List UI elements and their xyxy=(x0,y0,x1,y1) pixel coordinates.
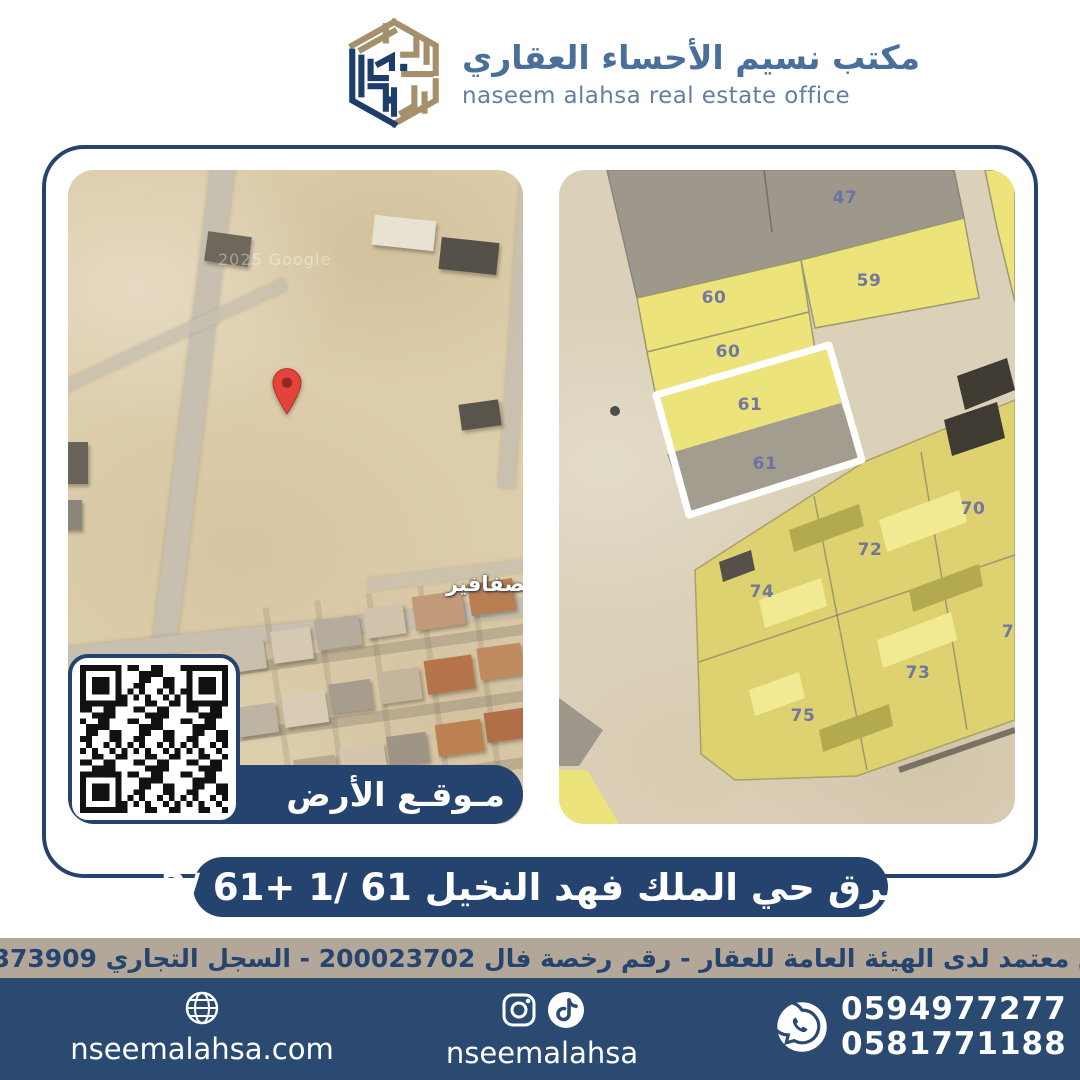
instagram-icon[interactable] xyxy=(499,990,539,1030)
building xyxy=(458,399,501,430)
parcel-number: 72 xyxy=(858,540,883,560)
parcel-number: 60 xyxy=(702,288,727,308)
social-handle[interactable]: nseemalahsa xyxy=(446,1036,638,1070)
listing-title: شرق حي الملك فهد النخيل 61 /1 +61 /2 xyxy=(161,866,921,909)
phone-number[interactable]: 0581771188 xyxy=(841,1027,1067,1062)
license-text: مسوق معتمد لدى الهيئة العامة للعقار - رق… xyxy=(0,944,1080,973)
parcel-number: 70 xyxy=(961,499,986,519)
parcel-number: 47 xyxy=(833,188,858,208)
building xyxy=(435,719,485,757)
building xyxy=(372,215,437,251)
whatsapp-icon[interactable] xyxy=(775,1000,829,1054)
road xyxy=(499,170,523,488)
parcel-number: 7 xyxy=(1002,622,1014,642)
building xyxy=(377,667,423,705)
building xyxy=(68,500,82,530)
building xyxy=(438,237,499,275)
footer: nseemalahsa.com nseemalahsa xyxy=(0,978,1080,1080)
parcel-number: 60 xyxy=(716,342,741,362)
brand-name-english: naseem alahsa real estate office xyxy=(462,83,920,109)
building xyxy=(328,679,374,715)
qr-code[interactable] xyxy=(68,654,240,824)
social-group: nseemalahsa xyxy=(432,990,652,1070)
website-group: nseemalahsa.com xyxy=(92,990,312,1066)
parcel-number: 73 xyxy=(906,663,931,683)
building xyxy=(476,643,523,681)
parcel-number: 61 xyxy=(753,454,778,474)
land-location-banner: مـوقـع الأرض xyxy=(218,765,523,824)
satellite-map[interactable]: 2025 Google لصفافير مـوقـع الأرض xyxy=(68,170,523,824)
phone-group: 0594977277 0581771188 xyxy=(775,992,1067,1061)
tiktok-icon[interactable] xyxy=(546,990,586,1030)
brand-logo xyxy=(340,17,448,129)
building xyxy=(483,707,523,743)
flyer-canvas: مكتب نسيم الأحساء العقاري naseem alahsa … xyxy=(0,0,1080,1080)
globe-icon xyxy=(184,990,220,1026)
building xyxy=(314,615,363,651)
parcel-number: 75 xyxy=(791,706,816,726)
district-label: لصفافير xyxy=(446,572,523,596)
map-card: 2025 Google لصفافير مـوقـع الأرض xyxy=(42,145,1038,878)
building xyxy=(235,702,279,737)
location-pin-icon xyxy=(267,366,307,418)
building xyxy=(68,442,88,484)
land-location-label: مـوقـع الأرض xyxy=(286,775,505,814)
building xyxy=(270,627,314,664)
parcel-map[interactable]: 47596060616170727473757 xyxy=(559,170,1015,824)
website-link[interactable]: nseemalahsa.com xyxy=(70,1032,333,1066)
building xyxy=(281,690,329,728)
brand-header: مكتب نسيم الأحساء العقاري naseem alahsa … xyxy=(340,14,760,132)
building xyxy=(363,604,407,639)
listing-title-bar: شرق حي الملك فهد النخيل 61 /1 +61 /2 xyxy=(193,857,888,917)
license-bar: مسوق معتمد لدى الهيئة العامة للعقار - رق… xyxy=(0,938,1080,978)
building xyxy=(424,654,476,694)
parcel-number: 59 xyxy=(857,271,882,291)
map-watermark: 2025 Google xyxy=(218,250,331,269)
building xyxy=(386,732,430,767)
road xyxy=(68,279,288,404)
parcel-number: 61 xyxy=(738,395,763,415)
parcel-number: 74 xyxy=(750,582,775,602)
phone-number[interactable]: 0594977277 xyxy=(841,992,1067,1027)
brand-name-arabic: مكتب نسيم الأحساء العقاري xyxy=(462,38,920,77)
building xyxy=(412,590,466,631)
